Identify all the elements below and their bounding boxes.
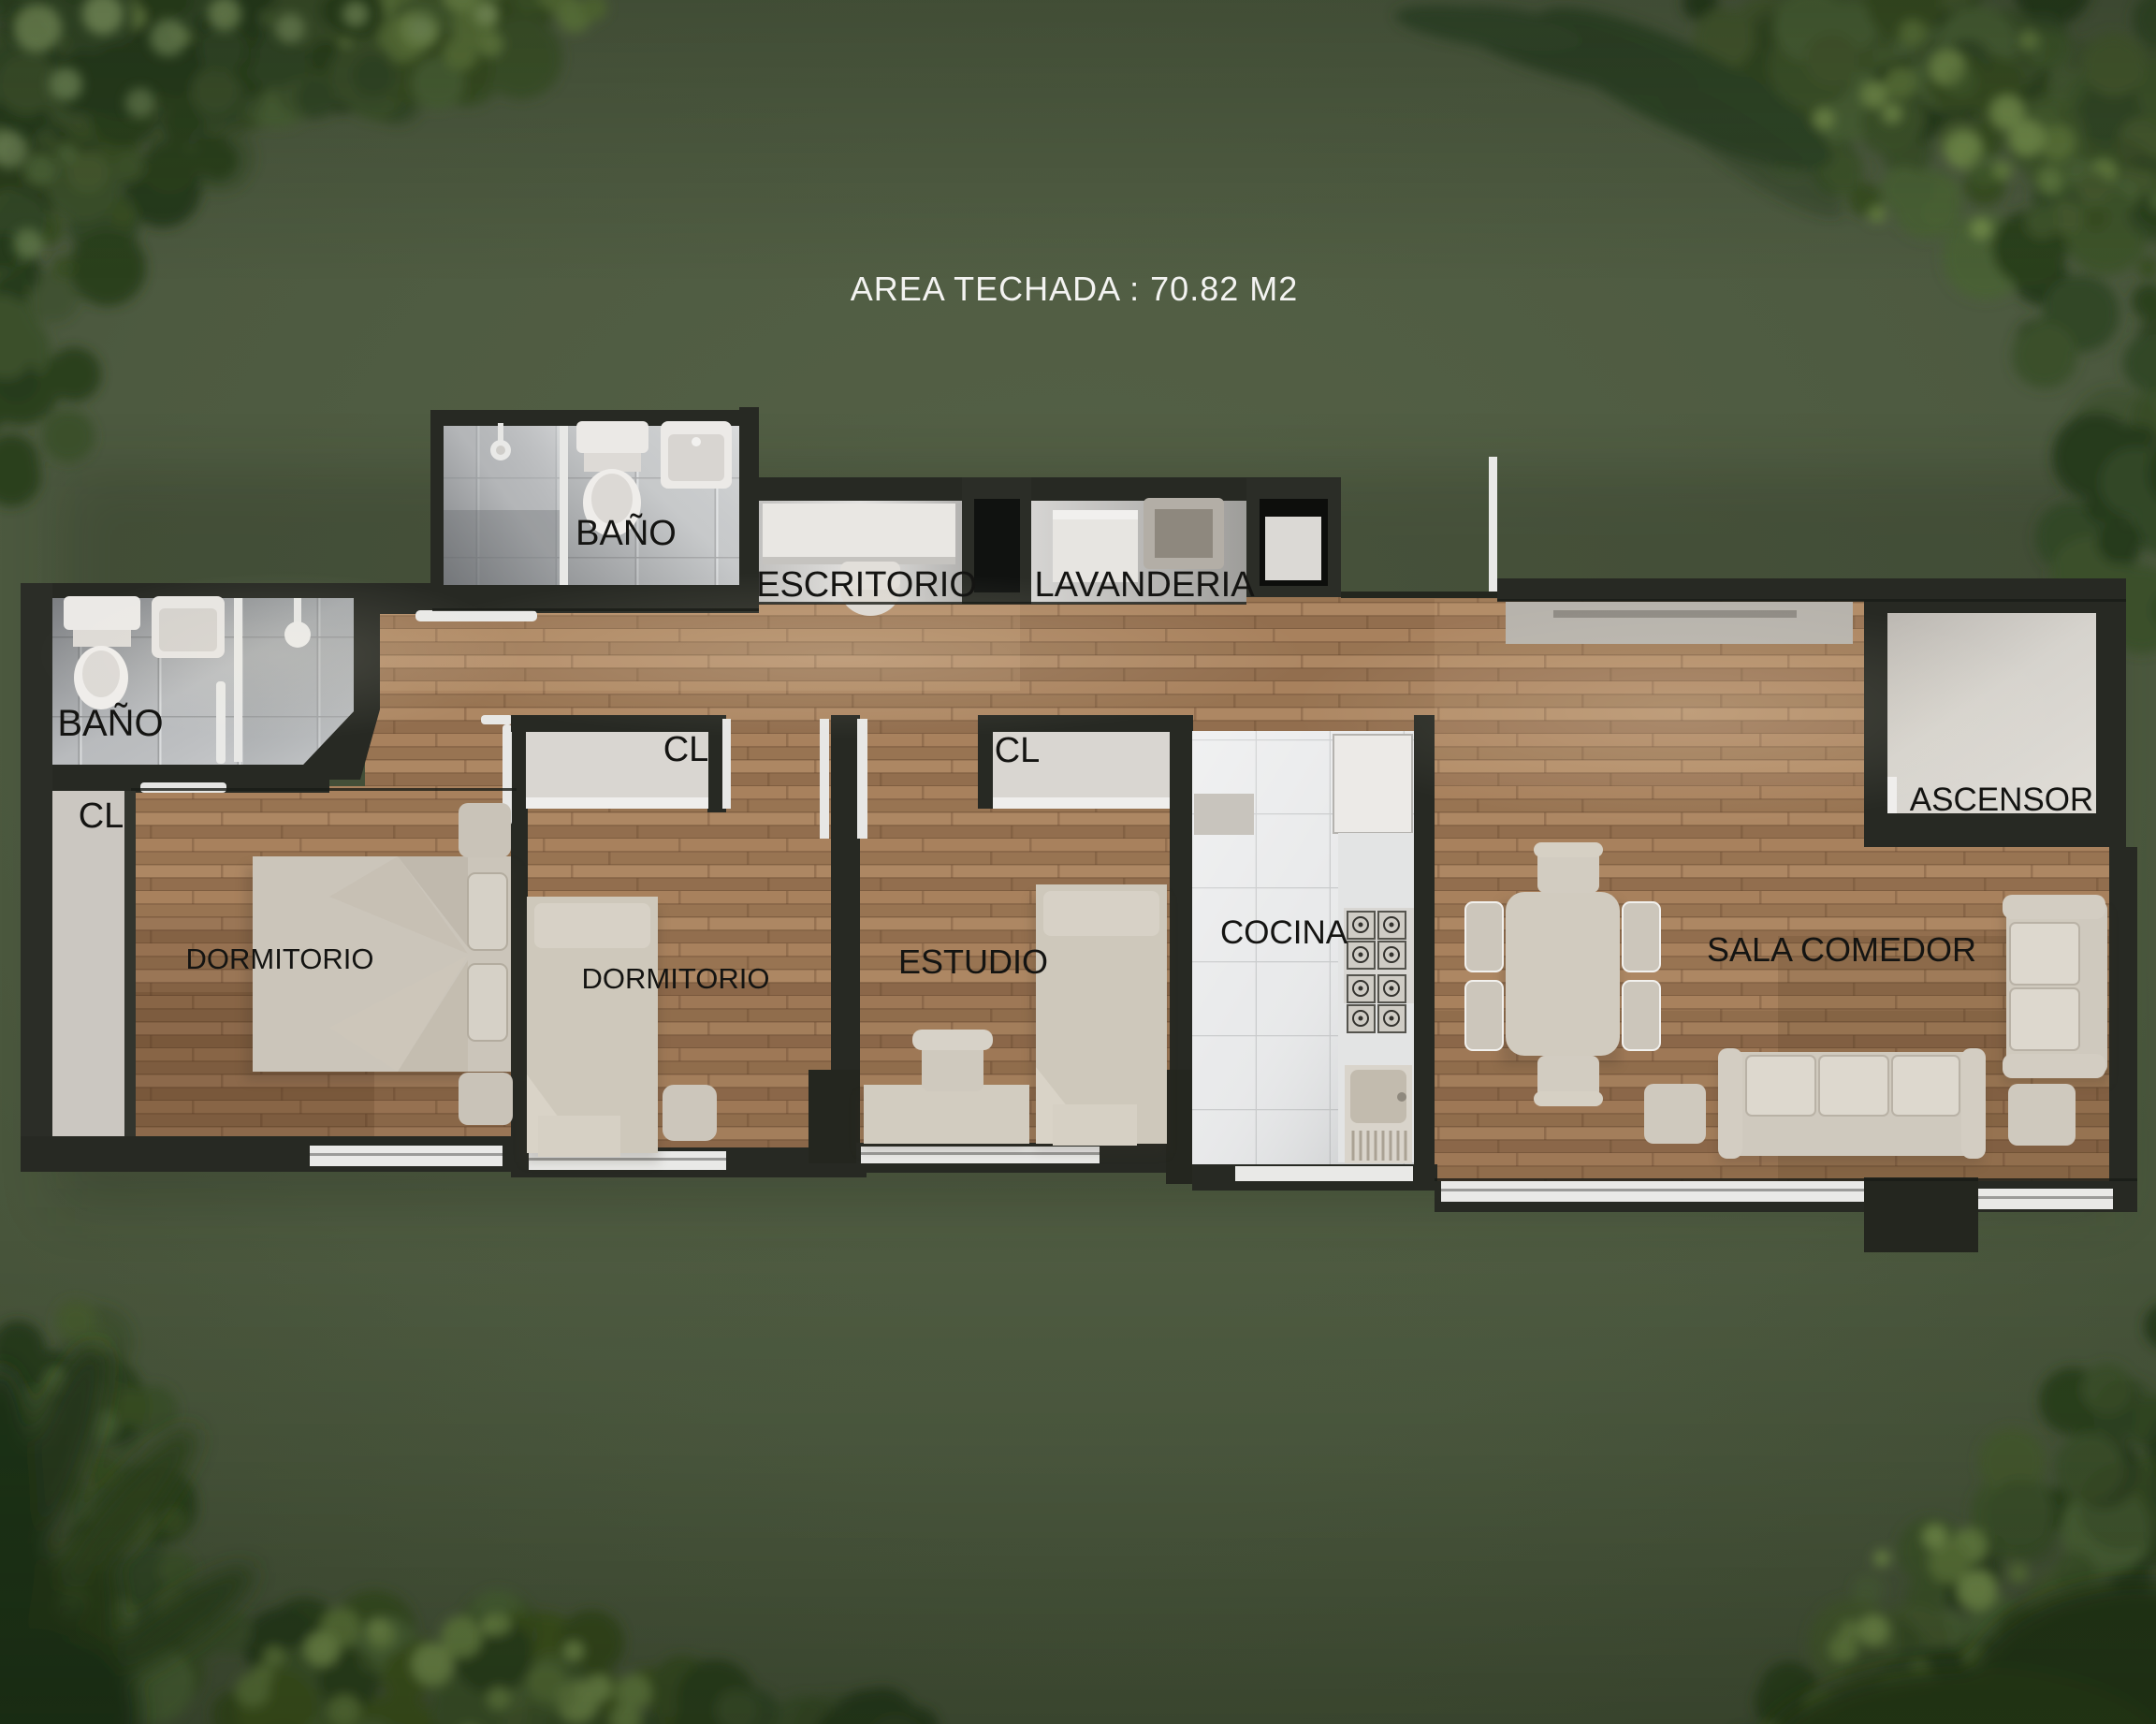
svg-text:ASCENSOR: ASCENSOR bbox=[1910, 782, 2093, 818]
svg-text:COCINA: COCINA bbox=[1220, 914, 1348, 951]
svg-text:CL: CL bbox=[995, 731, 1041, 770]
svg-text:BAÑO: BAÑO bbox=[575, 513, 677, 553]
svg-text:ESTUDIO: ESTUDIO bbox=[898, 942, 1048, 981]
svg-text:DORMITORIO: DORMITORIO bbox=[186, 942, 374, 975]
svg-text:CL: CL bbox=[663, 730, 709, 769]
svg-text:ESCRITORIO: ESCRITORIO bbox=[756, 565, 977, 605]
svg-text:SALA COMEDOR: SALA COMEDOR bbox=[1707, 930, 1976, 969]
svg-text:LAVANDERIA: LAVANDERIA bbox=[1034, 565, 1255, 605]
svg-text:CL: CL bbox=[79, 796, 124, 836]
svg-text:DORMITORIO: DORMITORIO bbox=[582, 962, 770, 995]
svg-text:BAÑO: BAÑO bbox=[57, 702, 163, 744]
